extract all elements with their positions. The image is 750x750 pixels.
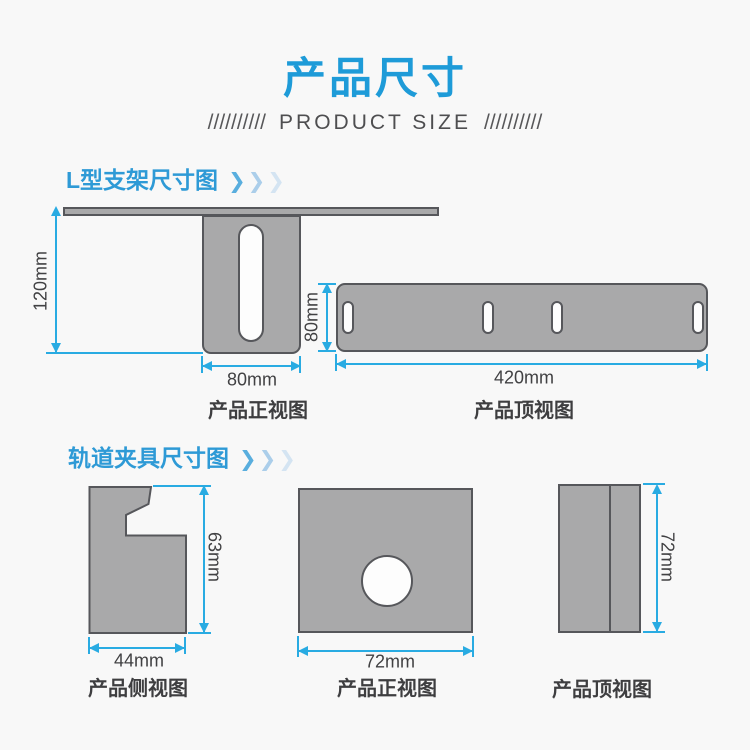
- page-subtitle: ////////// PRODUCT SIZE //////////: [0, 111, 750, 135]
- chevron-icon: ❯: [239, 448, 257, 471]
- extension-line: [643, 483, 665, 485]
- chevron-icon: ❯: [228, 170, 246, 193]
- dimension-line: [203, 365, 300, 367]
- dimension-label-width: 44mm: [114, 651, 164, 672]
- extension-line: [297, 636, 299, 657]
- extension-line: [153, 485, 211, 487]
- figure-caption: 产品顶视图: [552, 673, 652, 702]
- lbracket-top-view-shape: [336, 283, 708, 352]
- subtitle-slashes-left: //////////: [208, 111, 266, 135]
- dimension-arrow-up-icon: [51, 206, 61, 216]
- extension-line: [46, 352, 203, 354]
- chevron-icon: ❯: [248, 170, 266, 193]
- dimension-arrow-up-icon: [199, 485, 209, 495]
- chevron-icon: ❯: [259, 448, 277, 471]
- chevron-icon: ❯: [267, 170, 285, 193]
- product-size-infographic: 产品尺寸 ////////// PRODUCT SIZE ////////// …: [0, 0, 750, 750]
- figure-caption: 产品侧视图: [88, 672, 188, 701]
- clamp-round-hole: [361, 555, 413, 607]
- clamp-top-view-edge-line: [609, 486, 611, 631]
- dimension-arrow-left-icon: [298, 646, 308, 656]
- dimension-arrow-left-icon: [336, 359, 346, 369]
- dimension-label-width: 80mm: [227, 370, 277, 391]
- extension-line: [299, 356, 301, 373]
- dimension-arrow-left-icon: [202, 361, 212, 371]
- dimension-line: [90, 647, 185, 649]
- extension-line: [706, 354, 708, 371]
- lbracket-top-view-slot: [482, 301, 494, 334]
- dimension-label-width: 420mm: [494, 368, 554, 389]
- dimension-line: [55, 211, 57, 352]
- section-heading-rail-clamp-label: 轨道夹具尺寸图: [68, 445, 229, 471]
- dimension-label-height: 80mm: [302, 292, 323, 342]
- dimension-arrow-up-icon: [322, 283, 332, 293]
- dimension-arrow-up-icon: [652, 484, 662, 494]
- extension-line: [201, 356, 203, 373]
- figure-caption: 产品正视图: [337, 672, 437, 701]
- dimension-arrow-left-icon: [89, 643, 99, 653]
- chevron-icon: ❯: [278, 448, 296, 471]
- clamp-side-view-shape: [88, 484, 189, 636]
- dimension-label-height: 72mm: [657, 532, 678, 582]
- extension-line: [335, 354, 337, 371]
- extension-line: [184, 637, 186, 654]
- subtitle-text: PRODUCT SIZE: [279, 111, 471, 135]
- dimension-label-width: 72mm: [365, 652, 415, 673]
- section-heading-rail-clamp: 轨道夹具尺寸图❯❯❯: [68, 439, 296, 473]
- lbracket-top-view-slot: [692, 301, 704, 334]
- dimension-line: [337, 363, 707, 365]
- lbracket-top-view-slot: [342, 301, 354, 334]
- extension-line: [188, 632, 211, 634]
- extension-line: [318, 283, 336, 285]
- clamp-top-view-shape: [558, 484, 641, 633]
- figure-caption: 产品顶视图: [474, 394, 574, 423]
- lbracket-top-view-slot: [551, 301, 563, 334]
- section-heading-l-bracket: L型支架尺寸图❯❯❯: [66, 161, 285, 195]
- extension-line: [643, 631, 665, 633]
- extension-line: [472, 636, 474, 657]
- section-heading-l-bracket-label: L型支架尺寸图: [66, 167, 218, 193]
- dimension-label-height: 120mm: [31, 251, 52, 311]
- page-title: 产品尺寸: [0, 44, 750, 106]
- lbracket-slot-hole: [238, 224, 264, 342]
- figure-caption: 产品正视图: [208, 394, 308, 423]
- dimension-label-height: 63mm: [204, 532, 225, 582]
- subtitle-slashes-right: //////////: [484, 111, 542, 135]
- lbracket-top-flange-shape: [63, 207, 439, 216]
- extension-line: [318, 350, 336, 352]
- extension-line: [88, 637, 90, 654]
